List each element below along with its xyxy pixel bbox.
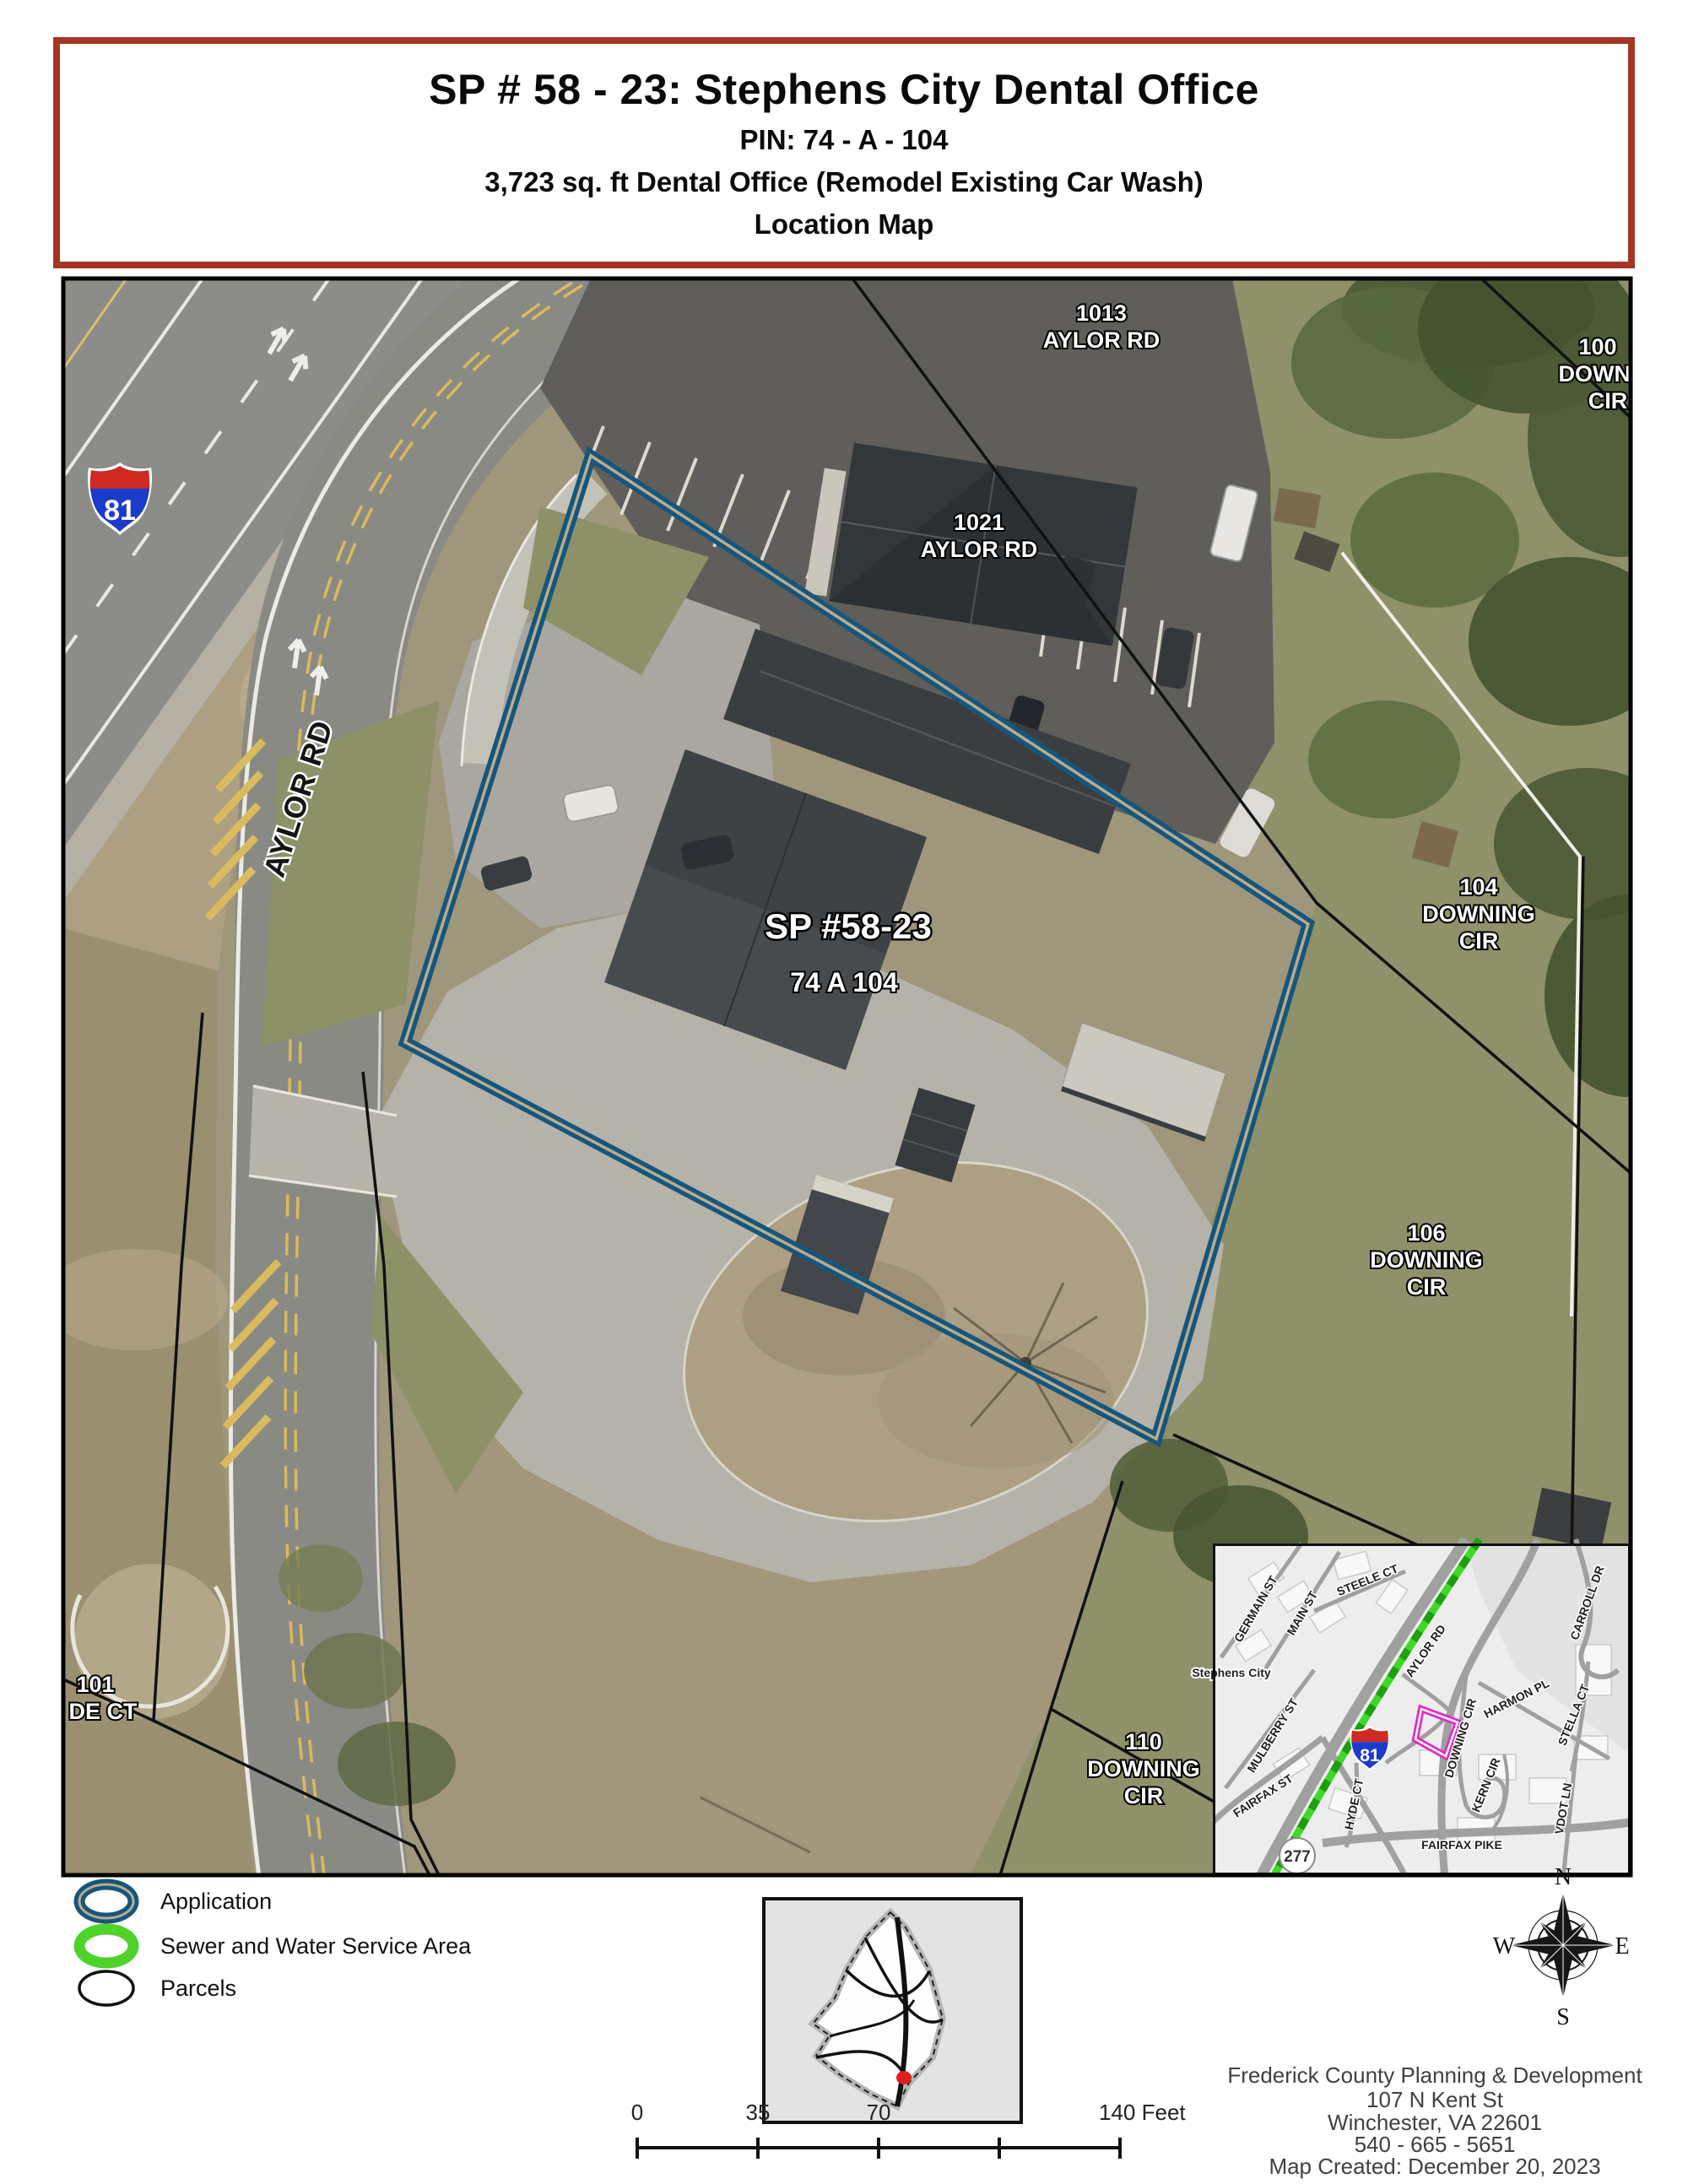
parcel-label: CIR bbox=[1407, 1274, 1447, 1300]
parcel-label: 100 bbox=[1578, 334, 1616, 359]
dirt-patch bbox=[42, 1249, 228, 1350]
title-box: SP # 58 - 23: Stephens City Dental Offic… bbox=[53, 37, 1635, 268]
parcel-label: 101 bbox=[76, 1672, 114, 1697]
parcel-label: 104 bbox=[1459, 874, 1497, 900]
compass-e: E bbox=[1615, 1933, 1629, 1960]
county-locator-map bbox=[764, 1899, 1021, 2122]
inset-map: 81 277 Stephens City GERMAIN ST MAIN ST … bbox=[1192, 1539, 1632, 1879]
map-document-page: 81 AYLOR RD 1013 AYLOR RD 100 DOWNI CIR … bbox=[0, 0, 1688, 2184]
parcel-label: CIR bbox=[1588, 388, 1628, 414]
inset-interstate-number: 81 bbox=[1360, 1746, 1380, 1765]
compass-w: W bbox=[1493, 1933, 1516, 1960]
parcel-label: CIR bbox=[1459, 928, 1499, 954]
legend-parcels-label: Parcels bbox=[160, 1976, 236, 2001]
credit-agency: Frederick County Planning & Development bbox=[1227, 2062, 1642, 2088]
route-277-shield-icon: 277 bbox=[1280, 1838, 1315, 1873]
credit-date: Map Created: December 20, 2023 bbox=[1269, 2154, 1600, 2179]
locator-site-dot bbox=[896, 2071, 912, 2084]
parcel-label: DOWNI bbox=[1559, 361, 1637, 387]
site-pin-label: 74 A 104 bbox=[790, 967, 898, 997]
parcel-label: 106 bbox=[1407, 1220, 1445, 1246]
parcel-label: AYLOR RD bbox=[1043, 327, 1160, 353]
inset-city-label: Stephens City bbox=[1192, 1666, 1271, 1679]
title-description: 3,723 sq. ft Dental Office (Remodel Exis… bbox=[484, 166, 1203, 198]
parcel-label: 1021 bbox=[954, 510, 1004, 535]
scale-label-140: 140 Feet bbox=[1099, 2100, 1186, 2125]
title-pin: PIN: 74 - A - 104 bbox=[740, 124, 949, 156]
parcel-label: 1013 bbox=[1076, 300, 1127, 326]
parcel-label: 110 bbox=[1125, 1729, 1162, 1754]
map-canvas: 81 AYLOR RD 1013 AYLOR RD 100 DOWNI CIR … bbox=[0, 0, 1688, 2184]
legend-application-label: Application bbox=[160, 1889, 272, 1914]
page-title: SP # 58 - 23: Stephens City Dental Offic… bbox=[429, 65, 1259, 114]
parcel-label: AYLOR RD bbox=[921, 537, 1038, 562]
parcel-label: DOWNING bbox=[1370, 1247, 1482, 1273]
parcel-label: CIR bbox=[1124, 1783, 1164, 1808]
scale-label-0: 0 bbox=[631, 2100, 643, 2125]
scale-label-70: 70 bbox=[867, 2100, 891, 2125]
legend-sewer-label: Sewer and Water Service Area bbox=[160, 1933, 472, 1959]
parcel-label: DE CT bbox=[69, 1699, 138, 1724]
route-277-number: 277 bbox=[1284, 1848, 1311, 1866]
parcel-label: DOWNING bbox=[1422, 901, 1534, 927]
parcel-label: DOWNING bbox=[1087, 1756, 1199, 1781]
site-case-label: SP #58-23 bbox=[765, 906, 932, 946]
compass-s: S bbox=[1556, 2004, 1570, 2030]
scale-label-35: 35 bbox=[746, 2100, 771, 2125]
title-map-type: Location Map bbox=[755, 208, 934, 241]
credit-street: 107 N Kent St bbox=[1366, 2087, 1504, 2112]
compass-n: N bbox=[1555, 1864, 1572, 1890]
street-label: FAIRFAX PIKE bbox=[1421, 1838, 1502, 1852]
interstate-81-number: 81 bbox=[104, 495, 136, 527]
